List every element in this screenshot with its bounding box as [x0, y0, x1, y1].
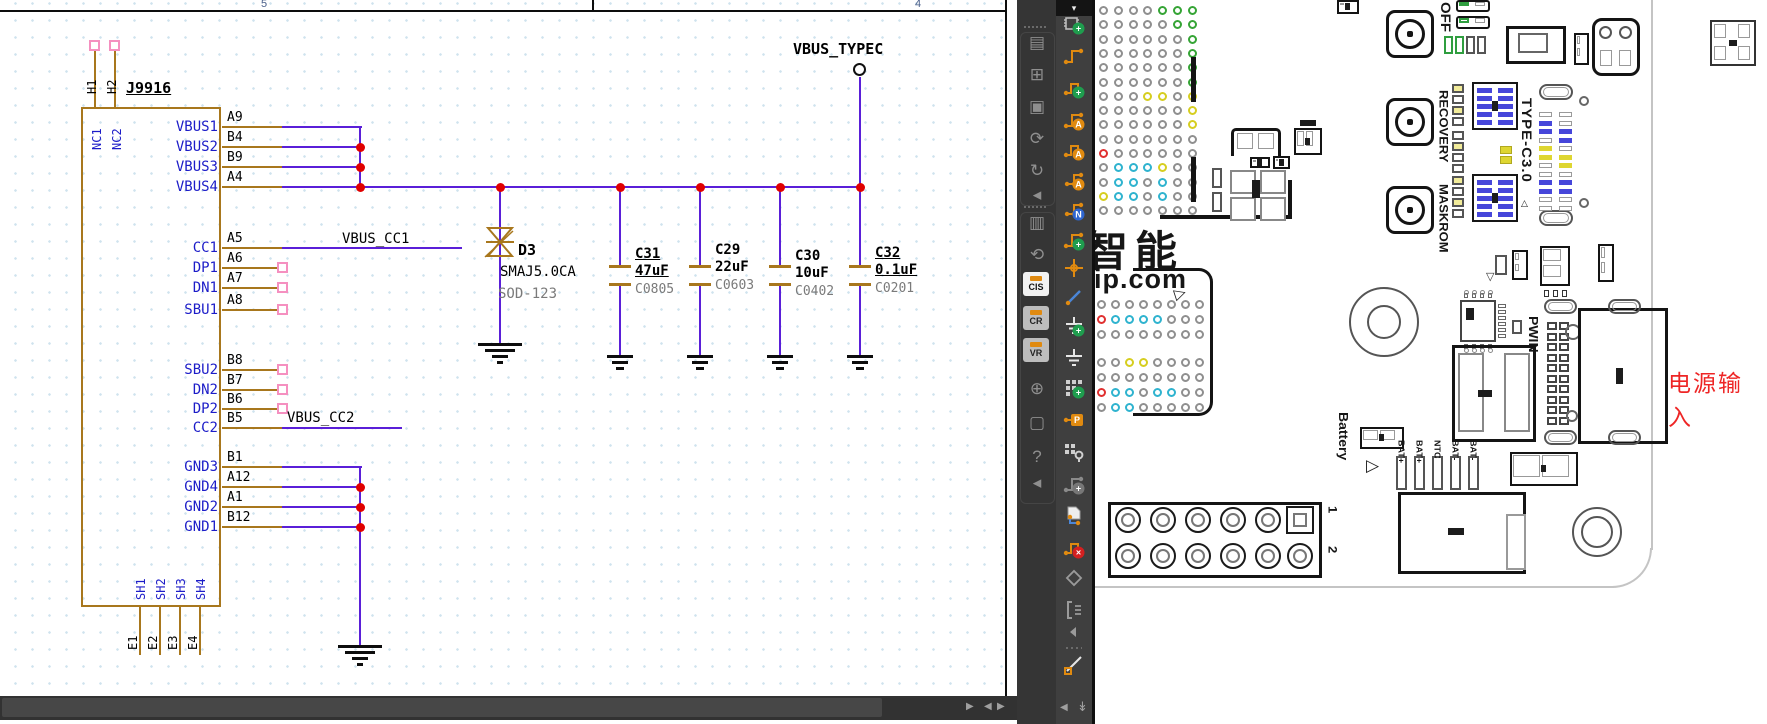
- sheet-zone-number: 4: [915, 0, 921, 10]
- breadboard-hole: [1158, 63, 1167, 72]
- grid-add-icon[interactable]: +: [1060, 374, 1088, 402]
- smd-pad-large[interactable]: [1260, 197, 1286, 221]
- svg-text:N: N: [1075, 210, 1082, 220]
- breadboard-hole: [1114, 63, 1123, 72]
- no-connect-marker: [277, 262, 288, 273]
- toolbar-more-icon[interactable]: ↡: [1077, 699, 1088, 715]
- wire-segment[interactable]: [282, 506, 362, 508]
- vr-cart-icon[interactable]: VR: [1023, 338, 1049, 362]
- pin-sbu2[interactable]: [222, 369, 277, 371]
- silk-label-bat: BAT+: [1415, 440, 1424, 463]
- via-hole: [1566, 410, 1578, 422]
- smd-pad[interactable]: [1452, 198, 1464, 207]
- chip-pad: [1601, 247, 1605, 258]
- shield-pin-number: E1: [126, 636, 140, 650]
- capacitor-ref[interactable]: C32: [875, 245, 900, 261]
- scroll-left-icon[interactable]: ◀: [984, 701, 992, 712]
- smd-pad[interactable]: [1212, 168, 1222, 188]
- connector-pin-pad: [1547, 396, 1557, 404]
- connector-pad[interactable]: [1506, 514, 1526, 570]
- breadboard-hole: [1139, 300, 1148, 309]
- qfn-pad: [1498, 304, 1506, 308]
- breadboard-hole: [1111, 315, 1120, 324]
- scroll-right2-icon[interactable]: ▶: [997, 701, 1005, 712]
- scroll-right-icon[interactable]: ▶: [966, 701, 974, 712]
- smd-pad[interactable]: [1452, 142, 1464, 151]
- connector-pin-pad: [1547, 343, 1557, 351]
- breadboard-hole: [1181, 358, 1190, 367]
- capacitor-plate[interactable]: [689, 265, 711, 268]
- wire-segment[interactable]: [282, 466, 362, 468]
- capacitor-ref[interactable]: C29: [715, 242, 740, 258]
- net-port-p-icon[interactable]: P: [1060, 406, 1088, 434]
- chip-sync-icon[interactable]: ⟲: [1023, 240, 1051, 268]
- junction-dot: [356, 483, 365, 492]
- wire-segment[interactable]: [282, 166, 362, 168]
- wire-segment[interactable]: [282, 427, 402, 429]
- typec-pad: [1539, 197, 1552, 202]
- smd-pad[interactable]: [1444, 36, 1453, 54]
- ground-symbol: [856, 367, 864, 370]
- grid-probe-icon[interactable]: [1060, 438, 1088, 466]
- place-component-icon[interactable]: +: [1060, 10, 1088, 38]
- header-hole-ring: [1121, 513, 1135, 527]
- smd-pad[interactable]: [1466, 36, 1475, 54]
- silk-label-battery: Battery: [1336, 412, 1351, 460]
- breadboard-hole: [1173, 20, 1182, 29]
- ground-symbol: [612, 361, 628, 364]
- wire-segment[interactable]: [859, 286, 861, 355]
- connector-designator[interactable]: J9916: [126, 79, 171, 97]
- breadboard-hole: [1173, 149, 1182, 158]
- silk-bar: [1544, 290, 1549, 297]
- connector-pin-pad: [1559, 385, 1569, 393]
- shield-pin-number: E4: [186, 636, 200, 650]
- ic-pad-blue: [1498, 196, 1513, 201]
- breadboard-hole: [1097, 315, 1106, 324]
- board-edge-corner: [1612, 548, 1652, 588]
- breadboard-hole: [1129, 163, 1138, 172]
- mounting-slot-inner: [1612, 302, 1637, 311]
- qfn-pad: [1498, 322, 1506, 326]
- capacitor-plate[interactable]: [769, 283, 791, 286]
- smd-pad[interactable]: [1455, 36, 1464, 54]
- pin-dn1[interactable]: [222, 287, 277, 289]
- wire-segment[interactable]: [282, 126, 362, 128]
- pane-divider[interactable]: [1092, 0, 1095, 724]
- collapse-icon[interactable]: ◂: [1023, 180, 1051, 208]
- ground-add-icon[interactable]: +: [1060, 312, 1088, 340]
- breadboard-hole: [1114, 206, 1123, 215]
- nc-pin-name-label: NC2: [110, 128, 124, 150]
- capacitor-plate[interactable]: [689, 283, 711, 286]
- svg-text:A: A: [1075, 180, 1082, 190]
- header-hole-ring: [1261, 513, 1275, 527]
- junction-dot: [356, 523, 365, 532]
- pin-gnd2[interactable]: [222, 506, 282, 508]
- breadboard-hole: [1167, 358, 1176, 367]
- library-search-icon[interactable]: ▤: [1023, 28, 1051, 56]
- ground-symbol: [696, 367, 704, 370]
- connector-outline[interactable]: [1592, 18, 1640, 76]
- wire-segment[interactable]: [779, 187, 781, 265]
- header-pin1-inner: [1293, 513, 1307, 527]
- capacitor-ref[interactable]: C30: [795, 248, 820, 264]
- breadboard-hole: [1153, 315, 1162, 324]
- sheet-border-top: [0, 10, 1006, 12]
- junction-dot: [856, 183, 865, 192]
- capacitor-plate[interactable]: [769, 265, 791, 268]
- smd-pad[interactable]: [1452, 131, 1464, 140]
- ground-symbol: [485, 349, 515, 352]
- wire-segment[interactable]: [619, 187, 621, 265]
- pin-vbus2[interactable]: [222, 146, 282, 148]
- collapse2-icon[interactable]: ◂: [1023, 468, 1051, 496]
- chip-pad: [1237, 133, 1253, 149]
- junction-dot: [616, 183, 625, 192]
- capacitor-value[interactable]: 0.1uF: [875, 262, 917, 278]
- net-label[interactable]: VBUS_CC1: [342, 231, 409, 247]
- pin-dp2[interactable]: [222, 408, 277, 410]
- schematic-canvas[interactable]: 54 J9916 VBUS1A9VBUS2B4VBUS3B9VBUS4A4CC1…: [0, 0, 1017, 724]
- wire-segment[interactable]: [359, 127, 361, 187]
- capacitor-plate[interactable]: [849, 265, 871, 268]
- chip-pad: [1253, 160, 1256, 162]
- net-port-circle[interactable]: [853, 63, 866, 76]
- refdes-blob: [1305, 138, 1310, 145]
- pin-name-label: DP1: [138, 260, 218, 276]
- refdes-blob: [1379, 434, 1384, 441]
- board-edge-bottom: [1095, 586, 1614, 588]
- smd-pad[interactable]: [1452, 176, 1464, 185]
- breadboard-hole: [1099, 92, 1108, 101]
- connector-pin-pad: [1559, 343, 1569, 351]
- pin-label: H1: [85, 80, 99, 94]
- breadboard-hole: [1158, 178, 1167, 187]
- no-connect-marker: [277, 304, 288, 315]
- ic-pad-blue: [1477, 104, 1492, 109]
- breadboard-hole: [1111, 403, 1120, 412]
- breadboard-hole: [1181, 403, 1190, 412]
- smd-pad[interactable]: [1512, 320, 1522, 334]
- smd-pad[interactable]: [1452, 106, 1464, 115]
- breadboard-hole: [1114, 120, 1123, 129]
- window-icon[interactable]: ▢: [1023, 408, 1051, 436]
- mounting-slot-inner: [1543, 213, 1569, 223]
- breadboard-hole: [1139, 315, 1148, 324]
- junction-dot: [356, 503, 365, 512]
- breadboard-hole: [1099, 135, 1108, 144]
- breadboard-hole: [1181, 373, 1190, 382]
- wire-add-icon[interactable]: +: [1060, 226, 1088, 254]
- capacitor-ref[interactable]: C31: [635, 246, 660, 262]
- connector-pin-pad: [1547, 406, 1557, 414]
- auto-wire3-icon[interactable]: A: [1060, 166, 1088, 194]
- smd-pad[interactable]: [1450, 456, 1461, 490]
- smd-pad[interactable]: [1452, 95, 1464, 104]
- ic-pad-blue: [1477, 196, 1492, 201]
- net-add-icon[interactable]: ⊕: [1023, 374, 1051, 402]
- breadboard-hole: [1139, 373, 1148, 382]
- draw-line-icon[interactable]: [1060, 282, 1088, 310]
- breadboard-hole: [1125, 358, 1134, 367]
- breadboard-hole: [1114, 192, 1123, 201]
- smd-pad-large[interactable]: [1260, 170, 1286, 194]
- qfn-pad: [1498, 316, 1506, 320]
- junction-dot: [356, 143, 365, 152]
- pin-vbus4[interactable]: [222, 186, 282, 188]
- pin-dp1[interactable]: [222, 267, 277, 269]
- breadboard-hole: [1158, 120, 1167, 129]
- breadboard-hole: [1153, 358, 1162, 367]
- smd-pad-yellow[interactable]: [1500, 156, 1512, 164]
- cr-cart-icon[interactable]: CR: [1023, 306, 1049, 330]
- breadboard-hole: [1099, 6, 1108, 15]
- smd-pad[interactable]: [1452, 84, 1464, 93]
- ic-pad-blue: [1498, 120, 1513, 125]
- breadboard-hole: [1173, 178, 1182, 187]
- library-add-icon[interactable]: ⊞: [1023, 60, 1051, 88]
- pin-gnd1[interactable]: [222, 526, 282, 528]
- breadboard-hole: [1143, 149, 1152, 158]
- tvs-diode-symbol[interactable]: [483, 224, 517, 264]
- pin-name-label: GND2: [138, 499, 218, 515]
- net-label-icon[interactable]: N: [1060, 196, 1088, 224]
- chip-pad: [1577, 36, 1580, 44]
- breadboard-hole: [1143, 178, 1152, 187]
- breadboard-hole: [1114, 92, 1123, 101]
- smd-pad[interactable]: [1432, 456, 1443, 490]
- breadboard-hole: [1143, 135, 1152, 144]
- smd-pad[interactable]: [1477, 36, 1486, 54]
- via-hole: [1579, 198, 1589, 208]
- pin-number-label: A4: [227, 170, 243, 185]
- cis-cart-icon[interactable]: CIS: [1023, 272, 1049, 296]
- ground-symbol: [345, 651, 375, 654]
- diode-ref[interactable]: D3: [518, 241, 536, 259]
- wire-segment[interactable]: [859, 77, 861, 187]
- connector-pin-pad: [1547, 375, 1557, 383]
- pin-gnd4[interactable]: [222, 486, 282, 488]
- smd-pad[interactable]: [1452, 117, 1464, 126]
- breadboard-hole: [1167, 330, 1176, 339]
- sheet-border-right: [1005, 0, 1007, 696]
- silkscreen-line: [1288, 180, 1292, 219]
- toolbar-collapse-icon[interactable]: ◀: [1060, 702, 1068, 713]
- breadboard-hole: [1143, 206, 1152, 215]
- doc-wire-icon[interactable]: [1060, 502, 1088, 530]
- wire-segment[interactable]: [859, 187, 861, 265]
- capacitor-plate[interactable]: [609, 283, 631, 286]
- refdes-blob: [1616, 368, 1623, 384]
- triangle-marker-icon: ▽: [1486, 270, 1494, 283]
- breadboard-hole: [1158, 163, 1167, 172]
- ground-symbol: [338, 645, 382, 648]
- connector-outline[interactable]: [1578, 308, 1668, 444]
- wire-segment[interactable]: [699, 187, 701, 265]
- breadboard-hole: [1167, 300, 1176, 309]
- breadboard-hole: [1158, 49, 1167, 58]
- breadboard-hole: [1188, 206, 1197, 215]
- breadboard-hole: [1173, 163, 1182, 172]
- pin-cc2[interactable]: [222, 427, 282, 429]
- chip-pad: [1513, 455, 1540, 477]
- capacitor-plate[interactable]: [849, 283, 871, 286]
- library-sync-icon[interactable]: ⟳: [1023, 124, 1051, 152]
- breadboard-hole: [1158, 35, 1167, 44]
- pin-vbus3[interactable]: [222, 166, 282, 168]
- shield-pin-number: E2: [146, 636, 160, 650]
- help-icon[interactable]: ?: [1023, 442, 1051, 470]
- breadboard-hole: [1099, 49, 1108, 58]
- ground-symbol: [478, 343, 522, 346]
- pcb-canvas[interactable]: ▽▷ 智能 ip.com ▷ OFF RECOVERY MASKROM TYPE…: [1095, 0, 1767, 724]
- wire-disabled-icon[interactable]: +: [1060, 470, 1088, 498]
- breadboard-hole: [1153, 373, 1162, 382]
- ground-symbol: [772, 361, 788, 364]
- cart-icon: [1030, 276, 1042, 281]
- wire-segment[interactable]: [282, 146, 362, 148]
- wire-segment[interactable]: [699, 286, 701, 355]
- diode-value[interactable]: SMAJ5.0CA: [500, 264, 576, 280]
- refdes-blob: [1492, 193, 1498, 203]
- breadboard-hole: [1125, 330, 1134, 339]
- breadboard-hole: [1143, 63, 1152, 72]
- breadboard-hole: [1097, 373, 1106, 382]
- pin-name-label: GND1: [138, 519, 218, 535]
- ic-pad-blue: [1498, 104, 1513, 109]
- via-dot: [1464, 290, 1469, 295]
- smd-pad-large[interactable]: [1230, 197, 1256, 221]
- server-icon[interactable]: ▥: [1023, 208, 1051, 236]
- capacitor-footprint: C0402: [795, 284, 834, 299]
- connector-cavity: [1518, 33, 1548, 53]
- pin-gnd3[interactable]: [222, 466, 282, 468]
- smd-pad[interactable]: [1212, 192, 1222, 212]
- refdes-blob: [1448, 528, 1464, 535]
- breadboard-hole: [1114, 135, 1123, 144]
- ic-pad-blue: [1498, 204, 1513, 209]
- auto-wire-icon[interactable]: A: [1060, 106, 1088, 134]
- chip-pad: [1258, 133, 1274, 149]
- net-label[interactable]: VBUS_CC2: [287, 410, 354, 426]
- shield-pin-label: SH4: [194, 578, 208, 600]
- smd-pad[interactable]: [1452, 164, 1464, 173]
- typec-pad: [1559, 121, 1572, 126]
- capacitor-value[interactable]: 47uF: [635, 263, 669, 279]
- capacitor-value[interactable]: 22uF: [715, 259, 749, 275]
- breadboard-hole: [1097, 330, 1106, 339]
- connector-pin-pad: [1547, 322, 1557, 330]
- ic-pad-blue: [1477, 188, 1492, 193]
- mounting-ring-inner: [1581, 516, 1613, 548]
- via-dot: [1472, 290, 1477, 295]
- junction-dot: [356, 183, 365, 192]
- wire-segment[interactable]: [779, 286, 781, 355]
- pin-sbu1[interactable]: [222, 309, 277, 311]
- chip-pad: [1714, 24, 1726, 38]
- breadboard-hole: [1111, 373, 1120, 382]
- wire-segment[interactable]: [359, 467, 361, 645]
- wire-segment[interactable]: [282, 247, 462, 249]
- breadboard-hole: [1153, 388, 1162, 397]
- chip-pad: [1515, 264, 1519, 271]
- breadboard-hole: [1143, 20, 1152, 29]
- breadboard-hole: [1114, 163, 1123, 172]
- smd-pad[interactable]: [1452, 153, 1464, 162]
- breadboard-hole: [1111, 330, 1120, 339]
- place-wire-icon[interactable]: [1060, 42, 1088, 70]
- silk-label-pwin: PWIN: [1526, 316, 1541, 353]
- wire-segment[interactable]: [282, 486, 362, 488]
- smd-pad[interactable]: [1452, 209, 1464, 218]
- pin-cc1[interactable]: [222, 247, 282, 249]
- qfn-outline[interactable]: [1460, 300, 1496, 342]
- ic-pad-blue: [1498, 112, 1513, 117]
- capacitor-value[interactable]: 10uF: [795, 265, 829, 281]
- connector-pad: [1600, 50, 1612, 66]
- breadboard-hole: [1129, 78, 1138, 87]
- wire-segment[interactable]: [619, 286, 621, 355]
- svg-text:+: +: [1076, 24, 1081, 34]
- crosshair-icon[interactable]: [1060, 254, 1088, 282]
- pin-number-label: B8: [227, 353, 243, 368]
- silk-label-bat: BAT-: [1469, 440, 1478, 460]
- breadboard-hole: [1195, 315, 1204, 324]
- wire-segment[interactable]: [282, 186, 862, 188]
- documents-icon[interactable]: ▣: [1023, 92, 1051, 120]
- ground-icon[interactable]: [1060, 344, 1088, 372]
- typec-pad: [1559, 129, 1572, 134]
- capacitor-plate[interactable]: [609, 265, 631, 268]
- pin-name-label: CC1: [138, 240, 218, 256]
- place-bus-icon[interactable]: +: [1060, 74, 1088, 102]
- chip-pad: [1738, 24, 1750, 38]
- header-hole-ring: [1191, 549, 1205, 563]
- smd-pad[interactable]: [1452, 187, 1464, 196]
- pin-dn2[interactable]: [222, 389, 277, 391]
- breadboard-hole: [1111, 388, 1120, 397]
- smd-pad[interactable]: [1468, 456, 1479, 490]
- breadboard-hole: [1139, 388, 1148, 397]
- pin-vbus1[interactable]: [222, 126, 282, 128]
- breadboard-hole: [1114, 35, 1123, 44]
- smd-pad[interactable]: [1495, 255, 1507, 275]
- no-connect-marker: [277, 364, 288, 375]
- breadboard-hole: [1181, 388, 1190, 397]
- pin-name-label: VBUS4: [138, 179, 218, 195]
- net-label[interactable]: VBUS_TYPEC: [793, 40, 883, 58]
- connector-pad: [1619, 50, 1631, 66]
- ic-pad-blue: [1477, 212, 1492, 217]
- cart-icon: [1030, 310, 1042, 315]
- delete-wire-icon[interactable]: ×: [1060, 534, 1088, 562]
- ground-symbol: [357, 663, 363, 666]
- silk-label-bat: BAT+: [1397, 440, 1406, 463]
- horizontal-scrollbar[interactable]: ▶ ◀ ▶: [0, 696, 1017, 720]
- shield-pin-label: SH3: [174, 578, 188, 600]
- no-connect-marker: [109, 40, 120, 51]
- breadboard-hole: [1129, 149, 1138, 158]
- breadboard-hole: [1125, 373, 1134, 382]
- line-tool-icon[interactable]: [1060, 650, 1088, 678]
- smd-pad-yellow[interactable]: [1500, 146, 1512, 154]
- connector-pin-pad: [1547, 364, 1557, 372]
- wire-segment[interactable]: [282, 526, 362, 528]
- diamond-icon[interactable]: [1060, 564, 1088, 592]
- auto-wire2-icon[interactable]: A: [1060, 136, 1088, 164]
- scrollbar-thumb[interactable]: [2, 698, 882, 717]
